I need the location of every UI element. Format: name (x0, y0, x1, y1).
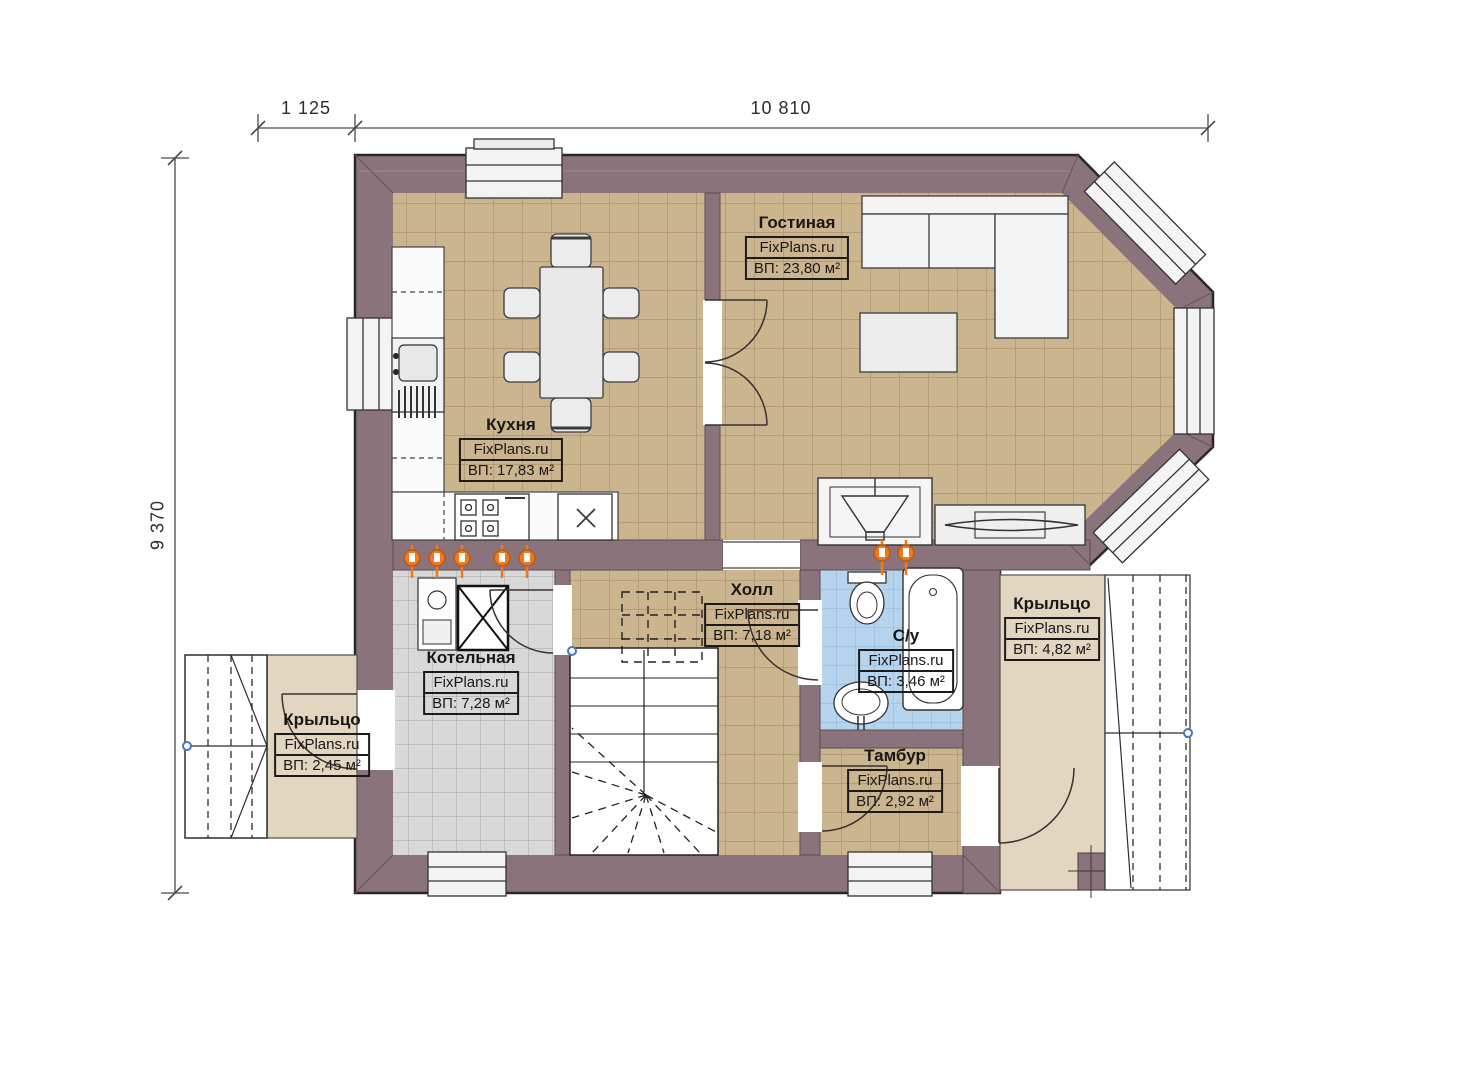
room-area: ВП: 2,92 м² (849, 792, 941, 811)
window-bottom-right (848, 852, 932, 896)
watermark-text: FixPlans.ru (276, 735, 368, 756)
room-info-box: FixPlans.ru ВП: 23,80 м² (745, 236, 849, 280)
room-label-hall: Холл FixPlans.ru ВП: 7,18 м² (704, 580, 800, 647)
room-label-porch-right: Крыльцо FixPlans.ru ВП: 4,82 м² (1004, 594, 1100, 661)
window-kitchen-left (347, 318, 395, 410)
watermark-text: FixPlans.ru (849, 771, 941, 792)
fireplace (818, 478, 932, 545)
room-info-box: FixPlans.ru ВП: 2,45 м² (274, 733, 370, 777)
watermark-text: FixPlans.ru (706, 605, 798, 626)
room-name: Гостиная (759, 213, 836, 233)
room-area: ВП: 4,82 м² (1006, 640, 1098, 659)
dimension-top (251, 114, 1215, 142)
watermark-text: FixPlans.ru (1006, 619, 1098, 640)
base-cabinet-x (558, 494, 612, 540)
room-name: Тамбур (864, 746, 926, 766)
room-info-box: FixPlans.ru ВП: 3,46 м² (858, 649, 954, 693)
room-info-box: FixPlans.ru ВП: 7,28 м² (423, 671, 519, 715)
stove (455, 494, 529, 540)
room-name: Котельная (426, 648, 515, 668)
room-name: Крыльцо (1013, 594, 1090, 614)
floor-plan-canvas: 1 125 10 810 9 370 Кухня FixPlans.ru ВП:… (0, 0, 1473, 1080)
room-label-bathroom: С/у FixPlans.ru ВП: 3,46 м² (858, 626, 954, 693)
watermark-text: FixPlans.ru (860, 651, 952, 672)
chair (504, 288, 540, 318)
room-name: Крыльцо (283, 710, 360, 730)
room-info-box: FixPlans.ru ВП: 2,92 м² (847, 769, 943, 813)
room-label-vestibule: Тамбур FixPlans.ru ВП: 2,92 м² (847, 746, 943, 813)
room-area: ВП: 7,18 м² (706, 626, 798, 645)
room-area: ВП: 7,28 м² (425, 694, 517, 713)
room-name: Холл (731, 580, 774, 600)
room-area: ВП: 23,80 м² (747, 259, 847, 278)
toilet (848, 572, 886, 624)
dimension-label-house-depth: 9 370 (148, 500, 169, 550)
window-kitchen-top (466, 139, 562, 198)
room-info-box: FixPlans.ru ВП: 4,82 м² (1004, 617, 1100, 661)
tv-stand (935, 505, 1085, 545)
room-name: Кухня (486, 415, 536, 435)
dimension-label-house-width: 10 810 (750, 98, 811, 119)
dimension-label-porch-width: 1 125 (281, 98, 331, 119)
watermark-text: FixPlans.ru (425, 673, 517, 694)
room-area: ВП: 3,46 м² (860, 672, 952, 691)
room-label-kitchen: Кухня FixPlans.ru ВП: 17,83 м² (459, 415, 563, 482)
washing-machine (418, 578, 456, 650)
room-label-boiler-room: Котельная FixPlans.ru ВП: 7,28 м² (423, 648, 519, 715)
room-info-box: FixPlans.ru ВП: 17,83 м² (459, 438, 563, 482)
window-bottom-left (428, 852, 506, 896)
room-area: ВП: 2,45 м² (276, 756, 368, 775)
room-label-living-room: Гостиная FixPlans.ru ВП: 23,80 м² (745, 213, 849, 280)
floor-plan-drawing (0, 0, 1473, 1080)
window-bay-right (1174, 308, 1214, 434)
boiler-unit (458, 586, 508, 650)
staircase (570, 648, 718, 855)
table-top (540, 267, 603, 398)
watermark-text: FixPlans.ru (747, 238, 847, 259)
kitchen-sink (392, 338, 444, 418)
room-name: С/у (893, 626, 919, 646)
chair (504, 352, 540, 382)
watermark-text: FixPlans.ru (461, 440, 561, 461)
chair (603, 352, 639, 382)
chair (603, 288, 639, 318)
porch-left-steps (185, 655, 267, 838)
room-label-porch-left: Крыльцо FixPlans.ru ВП: 2,45 м² (274, 710, 370, 777)
porch-right-steps (1105, 575, 1190, 890)
room-area: ВП: 17,83 м² (461, 461, 561, 480)
room-info-box: FixPlans.ru ВП: 7,18 м² (704, 603, 800, 647)
coffee-table (860, 313, 957, 372)
